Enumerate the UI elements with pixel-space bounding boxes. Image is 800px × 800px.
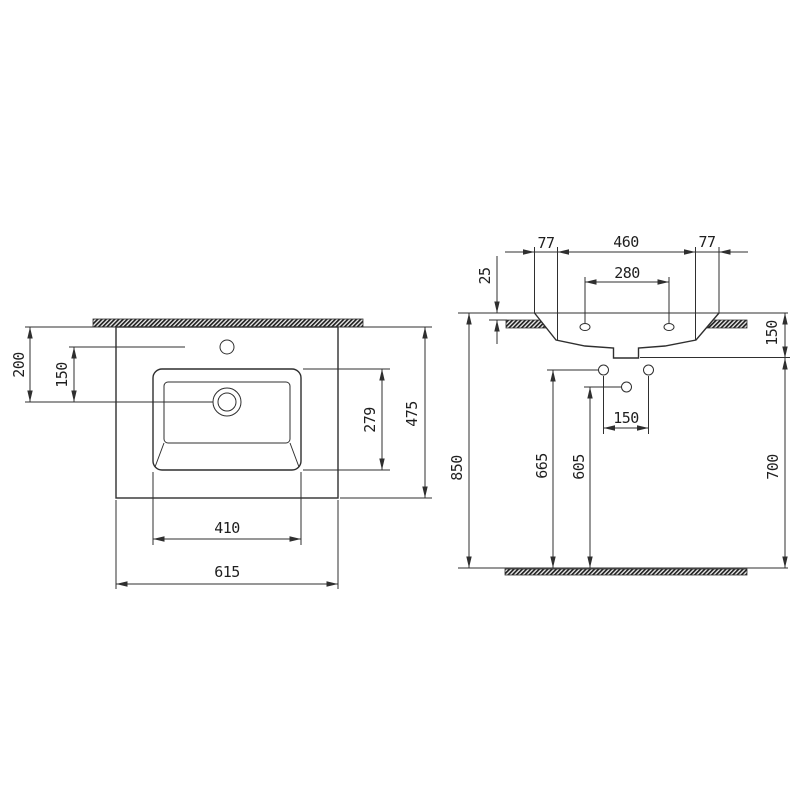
plan-dimensions: 200 150 279 — [10, 327, 432, 589]
wall-fixing-hole-3 — [622, 382, 632, 392]
dim-279: 279 — [303, 369, 390, 470]
floor-strip — [505, 569, 747, 575]
dim-665: 665 — [533, 370, 598, 568]
dim-label-200: 200 — [10, 352, 28, 378]
dim-label-615: 615 — [214, 563, 240, 581]
dim-label-605: 605 — [570, 454, 588, 480]
dim-label-150-holes: 150 — [613, 409, 639, 427]
dim-label-475: 475 — [403, 401, 421, 427]
wall-strip-right — [707, 320, 747, 328]
dim-615: 615 — [116, 500, 338, 589]
dim-475: 475 — [340, 327, 432, 498]
mount-hole-left — [580, 324, 590, 331]
dim-410: 410 — [153, 472, 301, 545]
drawing-canvas: 200 150 279 — [0, 0, 800, 800]
dim-label-665: 665 — [533, 453, 551, 479]
dim-label-25: 25 — [476, 267, 494, 284]
dim-850: 850 — [448, 313, 472, 568]
wall-fixing-hole-2 — [644, 365, 654, 375]
elevation-view: 77 460 77 280 25 — [448, 233, 790, 575]
drain-plan — [213, 388, 241, 416]
basin-profile-elevation — [535, 313, 720, 358]
elevation-dimensions: 77 460 77 280 25 — [448, 233, 790, 568]
dim-label-700: 700 — [764, 454, 782, 480]
plan-wall-strip — [93, 319, 363, 327]
dim-150-holes: 150 — [604, 376, 649, 434]
dim-label-77-right: 77 — [698, 233, 715, 251]
dim-label-410: 410 — [214, 519, 240, 537]
dim-700: 700 — [764, 358, 788, 568]
faucet-hole-plan — [220, 340, 234, 354]
wall-strip-left — [506, 320, 546, 328]
technical-drawing: 200 150 279 — [0, 0, 800, 800]
dim-label-279: 279 — [361, 407, 379, 433]
dim-25: 25 — [476, 256, 507, 344]
dim-label-77-left: 77 — [537, 234, 554, 252]
dim-150-plan: 150 — [53, 347, 185, 402]
dim-200: 200 — [10, 327, 213, 402]
wall-fixing-hole-1 — [599, 365, 609, 375]
mount-hole-right — [664, 324, 674, 331]
dim-label-460: 460 — [613, 233, 639, 251]
dim-label-150-rim: 150 — [763, 320, 781, 346]
dim-label-280: 280 — [614, 264, 640, 282]
dim-label-850: 850 — [448, 455, 466, 481]
dim-280: 280 — [585, 264, 669, 323]
plan-view: 200 150 279 — [10, 319, 432, 589]
dim-label-150-plan: 150 — [53, 362, 71, 388]
basin-outline-plan — [116, 327, 338, 498]
